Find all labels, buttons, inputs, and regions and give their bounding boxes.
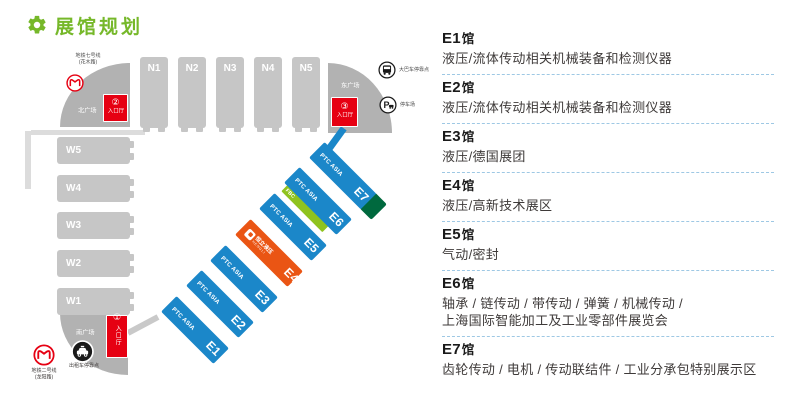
south-entrance-connector xyxy=(127,314,160,335)
parking-label: 停车场 xyxy=(400,102,430,108)
taxi-stop-label: 出租车停靠点 xyxy=(64,363,104,369)
west-hall-w2: W2 xyxy=(57,250,130,277)
metro-icon xyxy=(33,344,55,366)
entrance-3: ③ 入口厅 xyxy=(331,97,358,127)
legend-entry-e1: E1馆 液压/流体传动相关机械装备和检测仪器 xyxy=(442,26,774,75)
north-metro-label: 地铁七号线 (花木路) xyxy=(71,53,106,66)
bus-stop-label: 大巴车停靠点 xyxy=(399,67,439,73)
entrance-2: ② 入口厅 xyxy=(103,94,128,122)
road-horizontal xyxy=(31,130,145,135)
svg-text:P: P xyxy=(384,100,390,110)
west-hall-w1: W1 xyxy=(57,288,130,315)
legend-entry-e4: E4馆 液压/高新技术展区 xyxy=(442,173,774,222)
legend-entry-e7: E7馆 齿轮传动 / 电机 / 传动联结件 / 工业分承包特别展示区 xyxy=(442,337,774,385)
west-hall-w3: W3 xyxy=(57,212,130,239)
west-hall-w5: W5 xyxy=(57,137,130,164)
legend-entry-e6: E6馆 轴承 / 链传动 / 带传动 / 弹簧 / 机械传动 / 上海国际智能加… xyxy=(442,271,774,337)
entrance-1: ① 入口厅 xyxy=(106,315,128,358)
legend-entry-e2: E2馆 液压/流体传动相关机械装备和检测仪器 xyxy=(442,75,774,124)
hall-id: E7 xyxy=(442,341,461,358)
bus-icon xyxy=(378,61,396,79)
metro-icon xyxy=(66,74,84,92)
hall-description: 齿轮传动 / 电机 / 传动联结件 / 工业分承包特别展示区 xyxy=(442,361,774,378)
hall-description: 液压/流体传动相关机械装备和检测仪器 xyxy=(442,99,774,116)
page: 展馆规划 北广场 东广场 南广场 N1 N2 N3 N4 N5 W5 W4 W3… xyxy=(0,0,800,404)
hall-description: 液压/流体传动相关机械装备和检测仪器 xyxy=(442,50,774,67)
legend-entry-e3: E3馆 液压/德国展团 xyxy=(442,124,774,173)
hall-id: E4 xyxy=(442,177,461,194)
taxi-icon xyxy=(71,340,94,363)
north-hall-n3: N3 xyxy=(216,57,244,128)
ptc-asia-label: PTC ASIA xyxy=(319,152,345,178)
north-hall-n4: N4 xyxy=(254,57,282,128)
ptc-asia-label: PTC ASIA xyxy=(171,306,197,332)
hall-id: E3 xyxy=(442,128,461,145)
legend: E1馆 液压/流体传动相关机械装备和检测仪器 E2馆 液压/流体传动相关机械装备… xyxy=(442,26,774,385)
north-hall-n1: N1 xyxy=(140,57,168,128)
legend-entry-e5: E5馆 气动/密封 xyxy=(442,222,774,271)
hall-description: 气动/密封 xyxy=(442,246,774,263)
road-vertical xyxy=(25,131,31,189)
page-title: 展馆规划 xyxy=(55,12,143,39)
hall-id: E5 xyxy=(442,226,461,243)
hall-id: E6 xyxy=(442,275,461,292)
hall-description: 轴承 / 链传动 / 带传动 / 弹簧 / 机械传动 / 上海国际智能加工及工业… xyxy=(442,295,774,329)
east-plaza-label: 东广场 xyxy=(341,80,360,89)
north-hall-n5: N5 xyxy=(292,57,320,128)
parking-icon: P xyxy=(379,96,397,114)
north-plaza-label: 北广场 xyxy=(78,105,97,114)
hall-description: 液压/德国展团 xyxy=(442,148,774,165)
north-hall-n2: N2 xyxy=(178,57,206,128)
hall-description: 液压/高新技术展区 xyxy=(442,197,774,214)
hall-id: E1 xyxy=(442,30,461,47)
hall-id: E2 xyxy=(442,79,461,96)
south-plaza-label: 南广场 xyxy=(76,327,95,336)
gear-icon xyxy=(26,14,48,36)
west-hall-w4: W4 xyxy=(57,175,130,202)
south-metro-label: 地铁二号线 (龙阳路) xyxy=(27,368,62,381)
ptc-asia-label: PTC ASIA xyxy=(269,203,295,229)
ptc-asia-label: PTC ASIA xyxy=(196,280,222,306)
ptc-asia-label: PTC ASIA xyxy=(220,255,246,281)
